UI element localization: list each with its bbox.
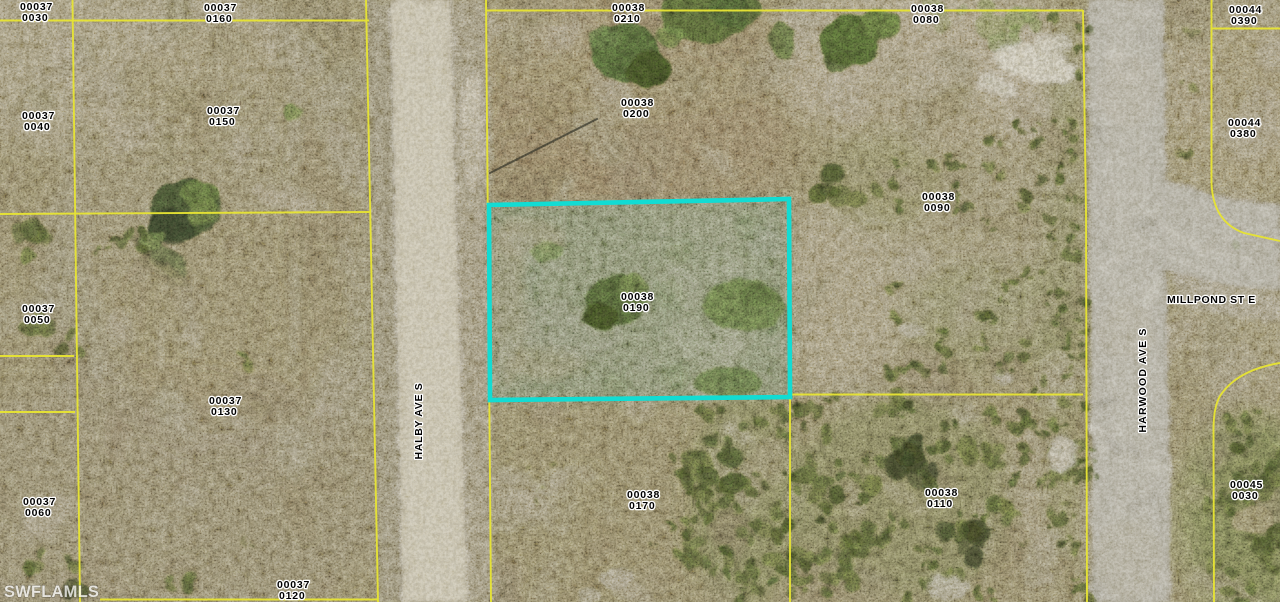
svg-text:HARWOOD AVE S: HARWOOD AVE S — [1137, 327, 1149, 432]
svg-text:0030: 0030 — [1232, 490, 1259, 502]
svg-text:0390: 0390 — [1231, 15, 1258, 27]
svg-text:0190: 0190 — [623, 302, 650, 314]
svg-text:MILLPOND ST E: MILLPOND ST E — [1167, 294, 1256, 306]
svg-text:0380: 0380 — [1230, 128, 1257, 140]
svg-text:0060: 0060 — [25, 507, 52, 519]
svg-text:0030: 0030 — [22, 12, 49, 24]
svg-text:0080: 0080 — [913, 14, 940, 26]
svg-text:0090: 0090 — [924, 202, 951, 214]
svg-text:0200: 0200 — [623, 108, 650, 120]
svg-text:0170: 0170 — [629, 500, 656, 512]
svg-text:0160: 0160 — [206, 13, 233, 25]
svg-text:0040: 0040 — [24, 121, 51, 133]
svg-text:HALBY AVE S: HALBY AVE S — [413, 383, 425, 460]
svg-text:0210: 0210 — [614, 13, 641, 25]
svg-text:0120: 0120 — [279, 590, 306, 602]
svg-text:SWFLAMLS: SWFLAMLS — [4, 583, 99, 601]
svg-text:0110: 0110 — [927, 498, 953, 510]
svg-text:0150: 0150 — [209, 116, 236, 128]
svg-text:0050: 0050 — [24, 314, 51, 326]
svg-text:0130: 0130 — [211, 406, 238, 418]
